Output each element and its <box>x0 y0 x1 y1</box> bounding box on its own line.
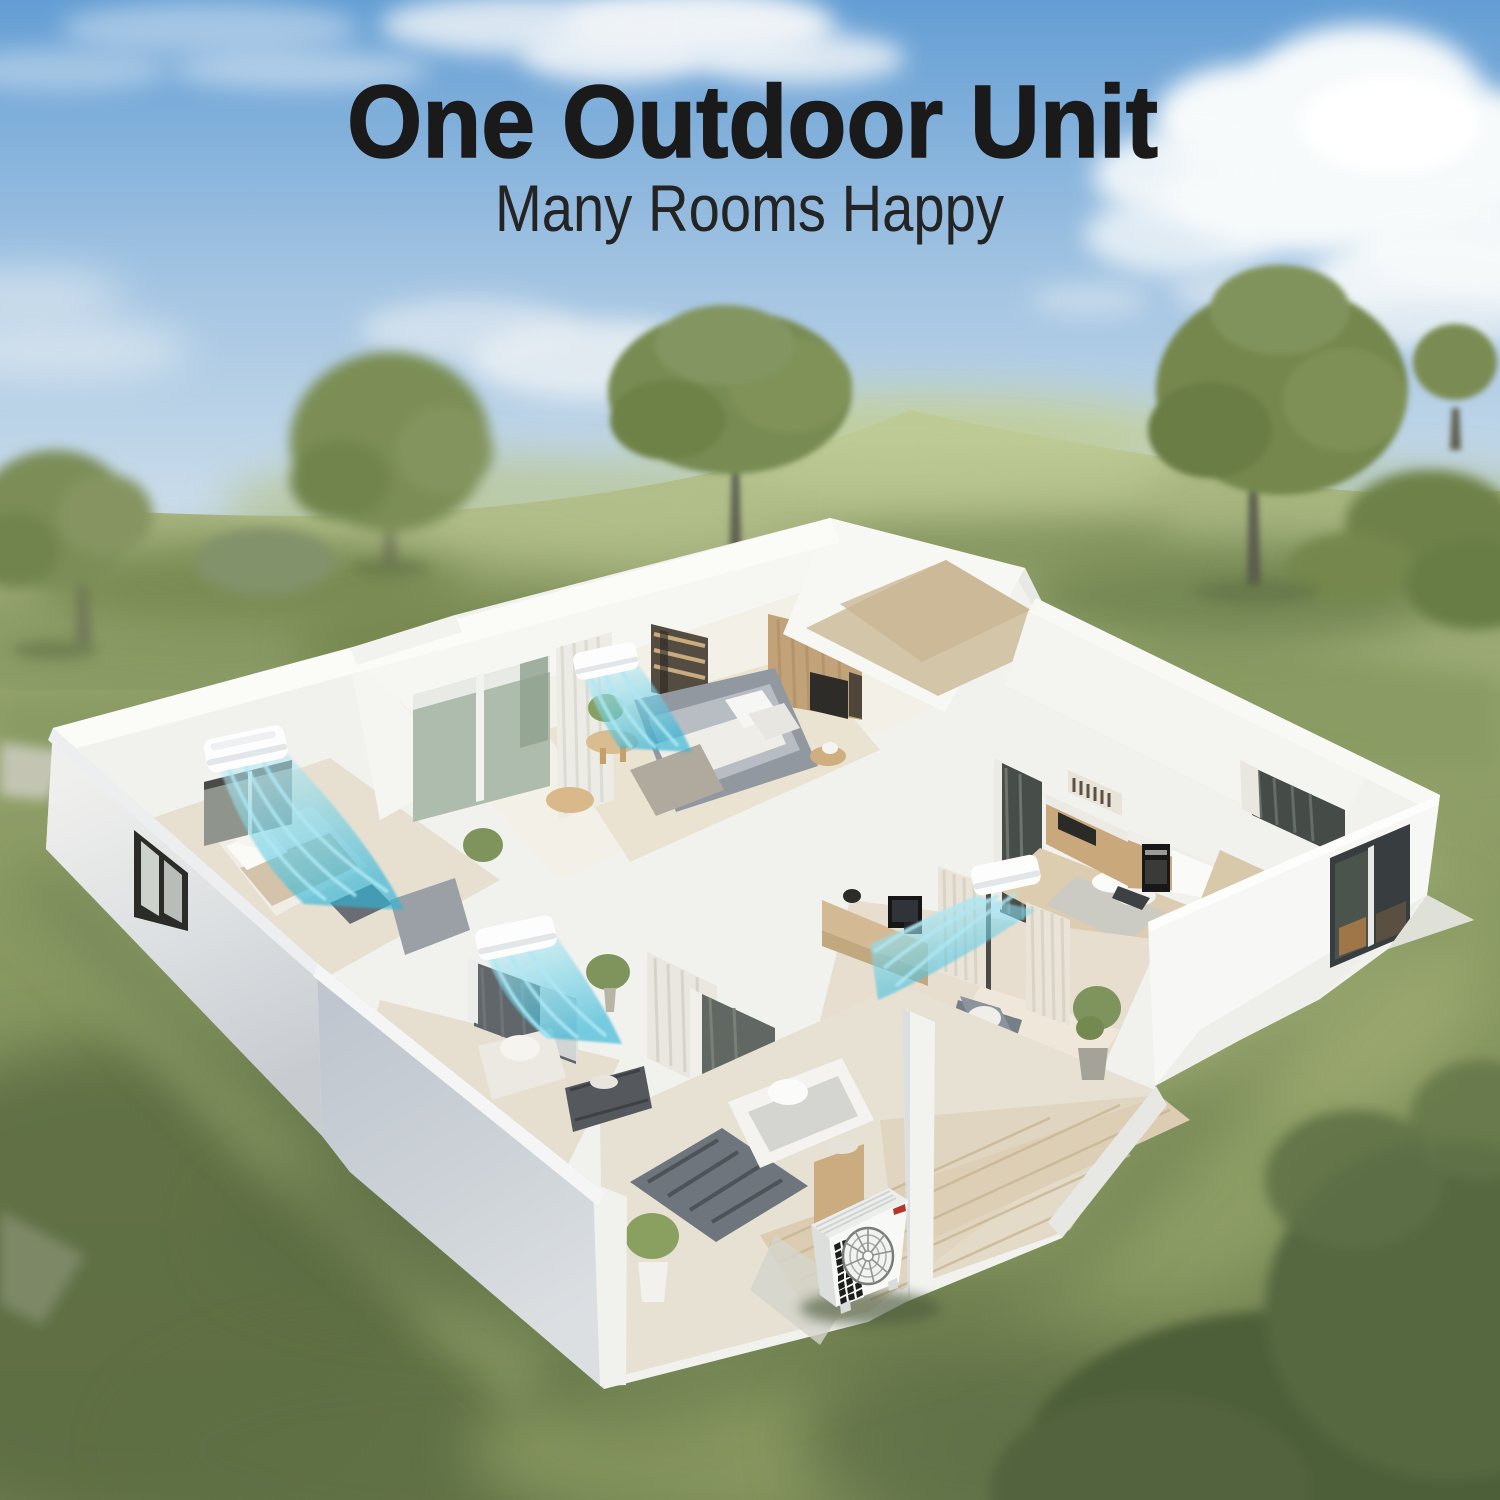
svg-text:One Outdoor Unit: One Outdoor Unit <box>347 64 1158 179</box>
svg-text:Many Rooms Happy: Many Rooms Happy <box>495 171 1004 245</box>
